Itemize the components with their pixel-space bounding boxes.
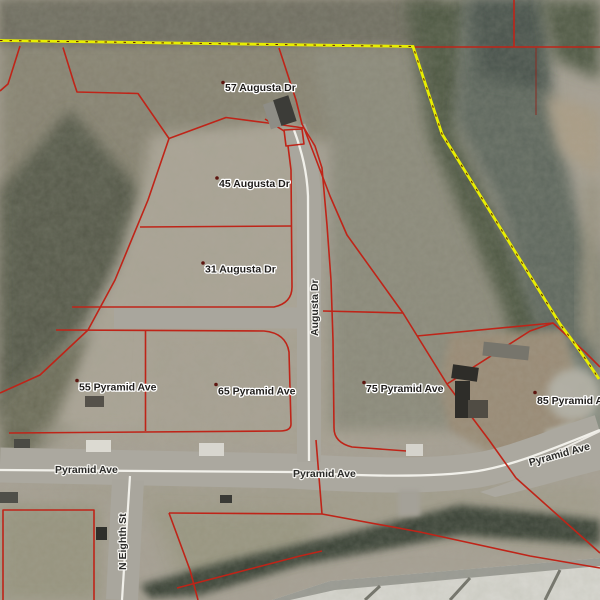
svg-text:Augusta Dr: Augusta Dr <box>309 279 321 336</box>
svg-text:85 Pyramid Ave: 85 Pyramid Ave <box>537 395 600 407</box>
svg-text:31 Augusta Dr: 31 Augusta Dr <box>205 264 276 276</box>
svg-text:65 Pyramid Ave: 65 Pyramid Ave <box>218 386 296 398</box>
svg-text:75 Pyramid Ave: 75 Pyramid Ave <box>366 383 444 395</box>
svg-text:Pyramid Ave: Pyramid Ave <box>55 464 118 476</box>
svg-text:55 Pyramid Ave: 55 Pyramid Ave <box>79 382 157 394</box>
svg-text:Pyramid Ave: Pyramid Ave <box>293 468 356 480</box>
svg-text:57 Augusta Dr: 57 Augusta Dr <box>225 82 296 94</box>
svg-text:45 Augusta Dr: 45 Augusta Dr <box>219 178 290 190</box>
svg-text:N Eighth St: N Eighth St <box>117 513 129 570</box>
